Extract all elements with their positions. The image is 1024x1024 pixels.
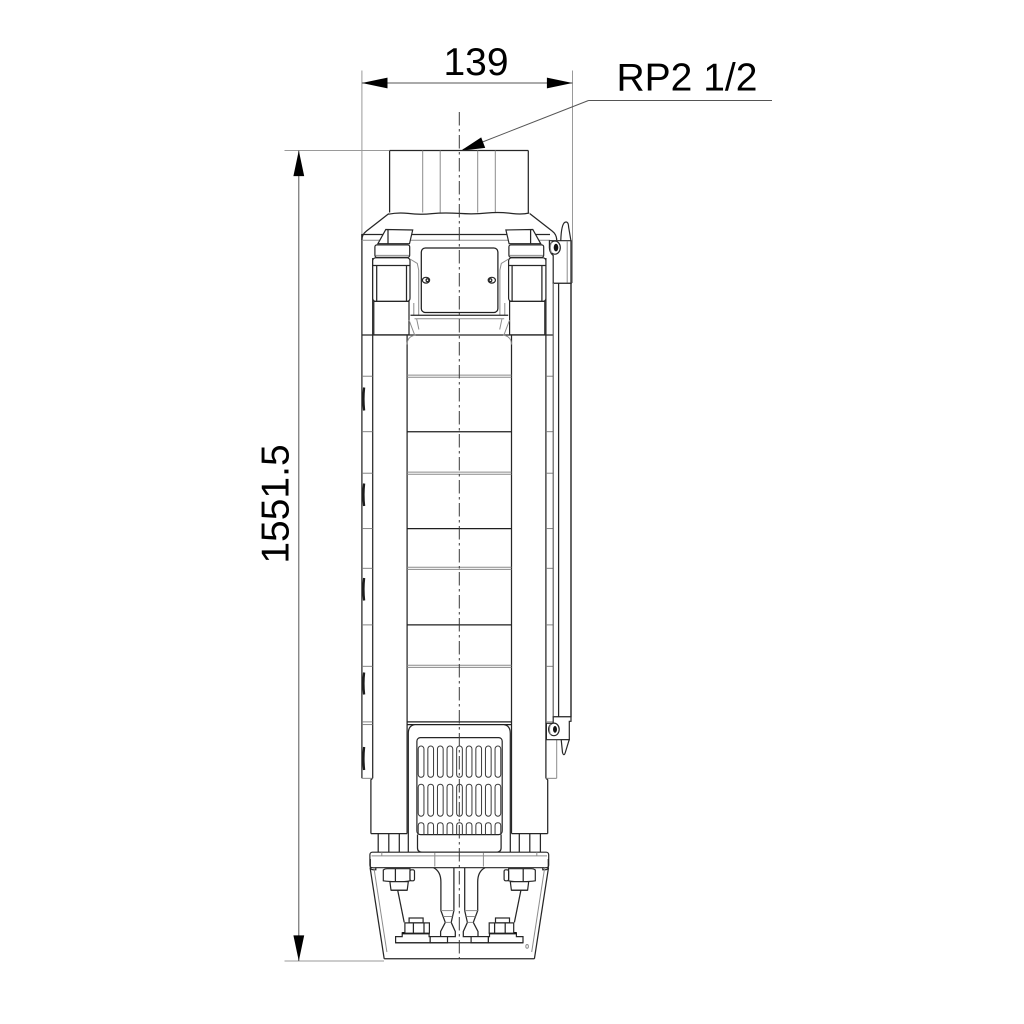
svg-text:RP2 1/2: RP2 1/2 [617,57,758,100]
svg-text:1551.5: 1551.5 [254,444,297,563]
svg-text:139: 139 [443,41,508,84]
